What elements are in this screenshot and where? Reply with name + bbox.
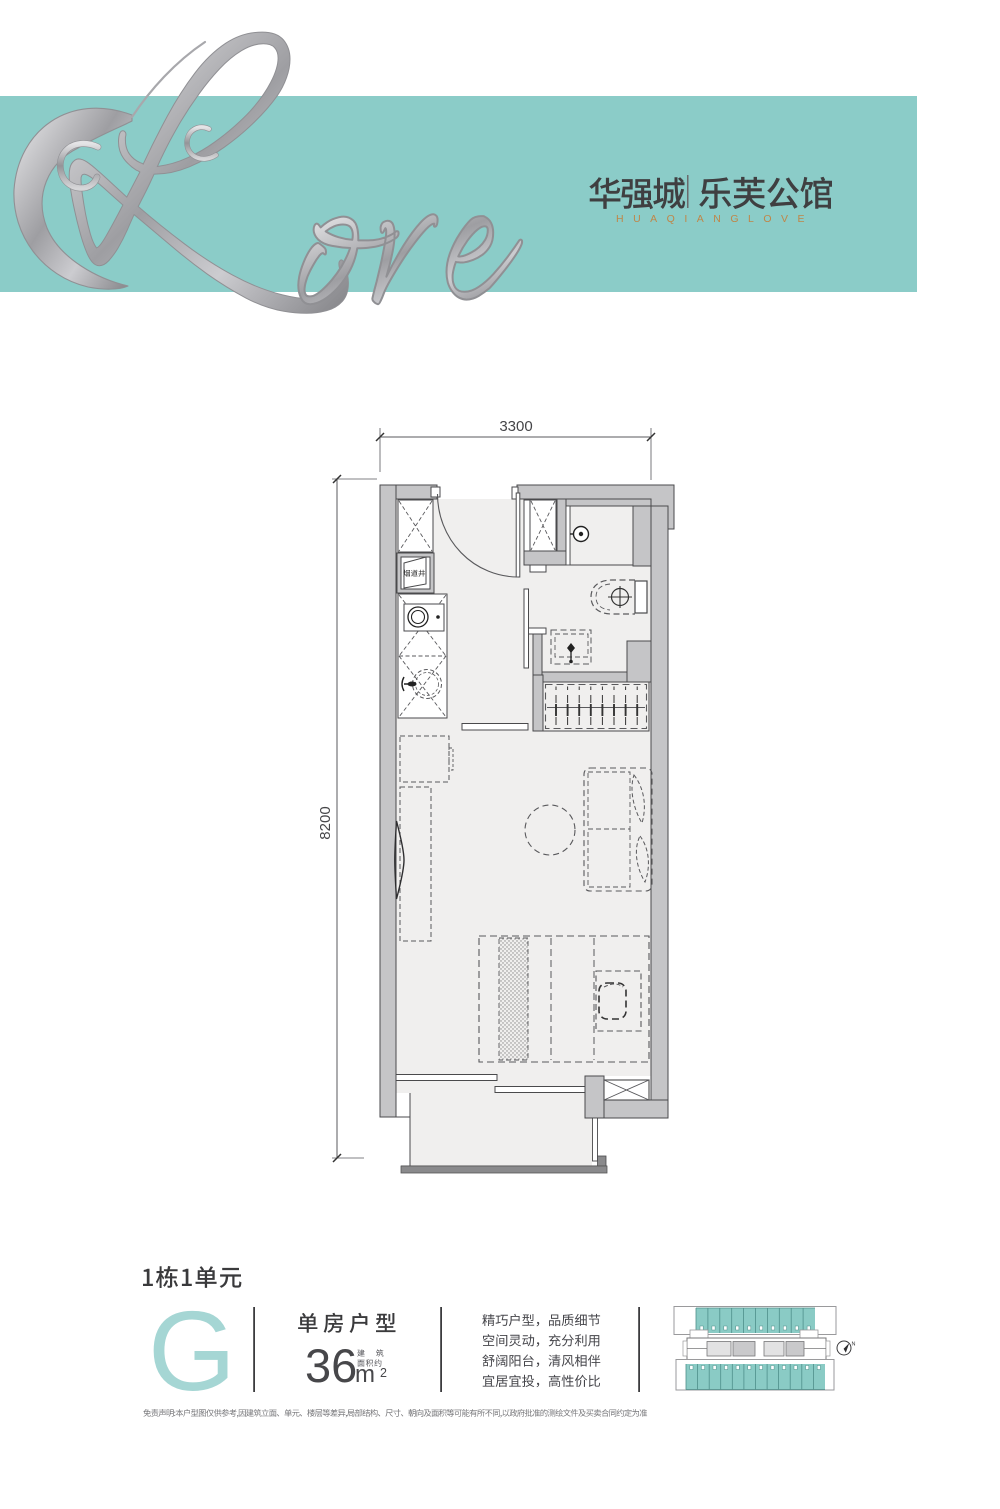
svg-text:HUAQIANGLOVE: HUAQIANGLOVE	[616, 213, 814, 225]
svg-text:8200: 8200	[317, 806, 334, 839]
svg-text:G: G	[148, 1288, 236, 1414]
svg-text:36: 36	[305, 1339, 357, 1392]
svg-text:2: 2	[380, 1366, 387, 1380]
svg-text:N: N	[852, 1342, 856, 1348]
svg-text:3300: 3300	[499, 418, 532, 435]
